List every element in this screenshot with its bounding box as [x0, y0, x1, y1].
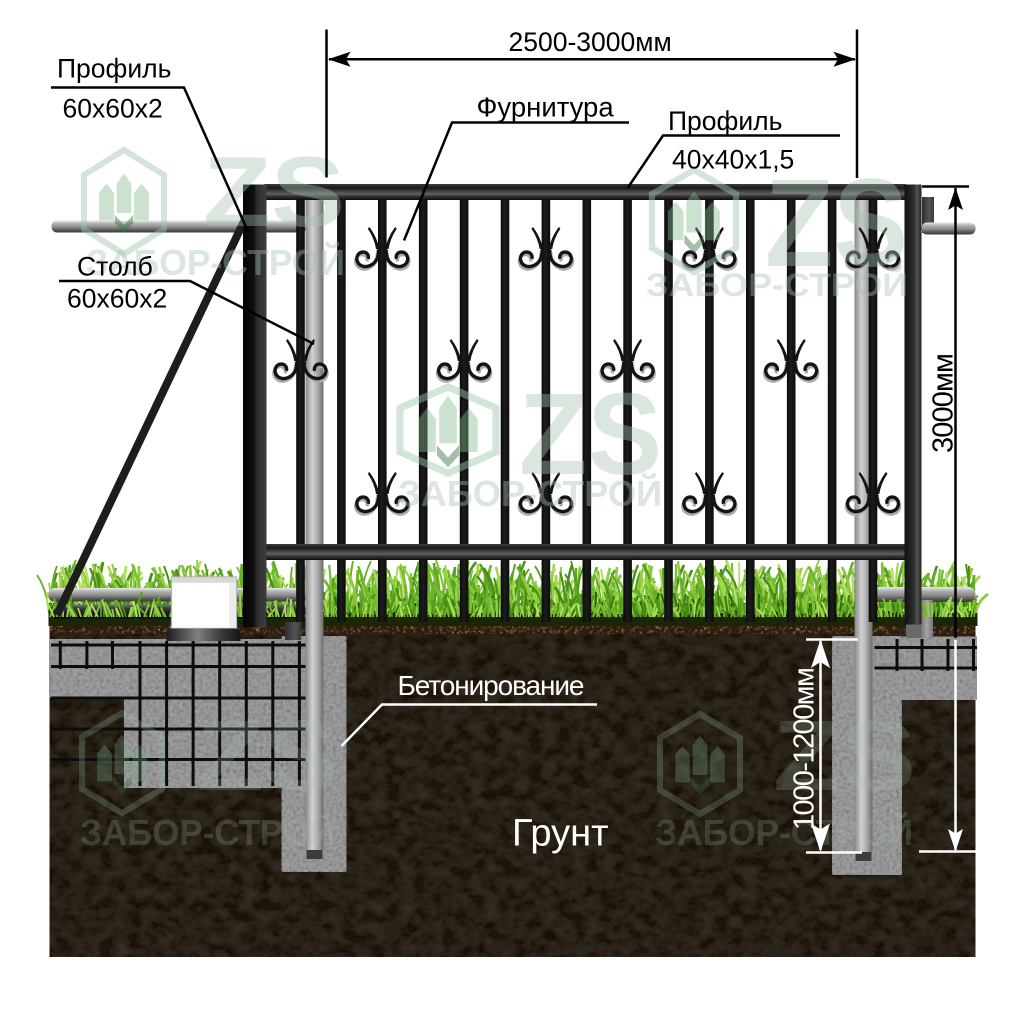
svg-text:ЗАБОР-СТРОЙ: ЗАБОР-СТРОЙ	[398, 472, 662, 514]
svg-text:40х40х1,5: 40х40х1,5	[672, 145, 794, 175]
svg-text:Бетонирование: Бетонирование	[398, 670, 585, 701]
svg-text:ZS: ZS	[196, 700, 338, 812]
svg-text:1000-1200мм: 1000-1200мм	[789, 667, 821, 830]
svg-text:Профиль: Профиль	[57, 54, 171, 84]
svg-text:60х60х2: 60х60х2	[63, 94, 163, 124]
svg-text:ЗАБОР-СТРОЙ: ЗАБОР-СТРОЙ	[646, 267, 908, 303]
svg-text:Фурнитура: Фурнитура	[477, 92, 615, 123]
svg-text:Грунт: Грунт	[512, 813, 609, 855]
svg-text:ЗАБОР-СТРОЙ: ЗАБОР-СТРОЙ	[80, 811, 335, 853]
svg-text:3000мм: 3000мм	[928, 353, 960, 453]
svg-text:Профиль: Профиль	[668, 106, 782, 136]
svg-text:60х60х2: 60х60х2	[67, 284, 167, 314]
svg-text:ZS: ZS	[203, 136, 345, 247]
svg-text:ЗАБОР-СТРОЙ: ЗАБОР-СТРОЙ	[655, 811, 913, 853]
svg-text:Столб: Столб	[77, 252, 153, 282]
svg-text:2500-3000мм: 2500-3000мм	[509, 27, 672, 57]
